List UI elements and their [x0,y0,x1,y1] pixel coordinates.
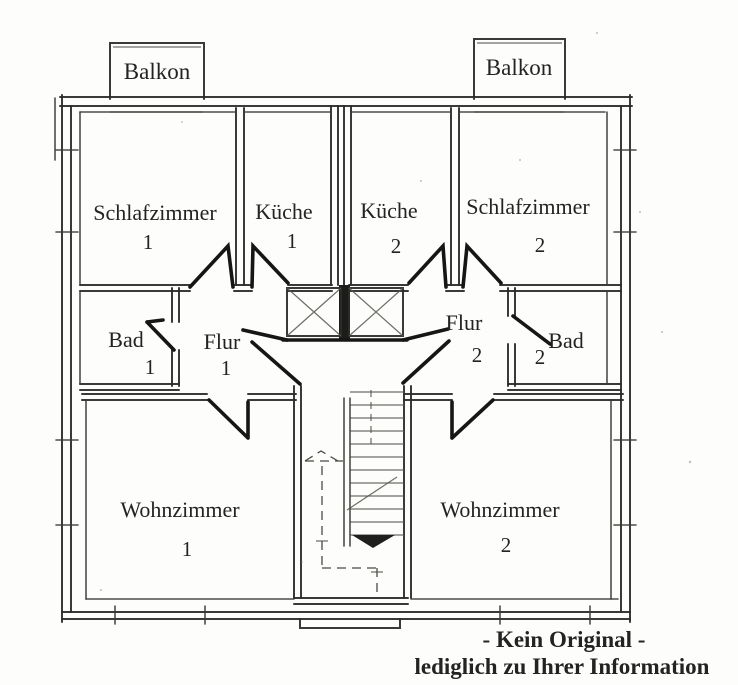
labels: Balkon Balkon Schlafzimmer 1 Küche 1 Küc… [93,55,709,679]
disclaimer-line-1: - Kein Original - [483,627,646,652]
door-bad-1 [147,320,174,350]
stair-banister [344,398,350,546]
door-schlafzimmer-2 [463,246,501,287]
door-kueche-2 [409,246,446,287]
door-flur-1-swing [243,330,287,340]
room-label-wohnzimmer-2: Wohnzimmer [440,497,560,522]
room-number-kueche-2: 2 [391,234,402,258]
room-label-kueche-2: Küche [360,198,417,223]
room-label-bad-1: Bad [108,327,143,352]
room-number-schlafzimmer-1: 1 [143,230,154,254]
room-number-wohnzimmer-2: 2 [501,533,512,557]
door-wohnzimmer-1 [209,400,248,438]
door-entry-apartment-2 [403,341,449,383]
room-label-schlafzimmer-1: Schlafzimmer [93,200,217,225]
door-kueche-1 [252,246,288,287]
scanned-floorplan-page: Balkon Balkon Schlafzimmer 1 Küche 1 Küc… [0,0,738,685]
door-schlafzimmer-1 [190,246,233,287]
room-number-bad-2: 2 [535,345,546,369]
room-number-flur-2: 2 [472,343,483,367]
stair-walkline [347,477,397,510]
room-label-wohnzimmer-1: Wohnzimmer [120,497,240,522]
floorplan-canvas: Balkon Balkon Schlafzimmer 1 Küche 1 Küc… [0,0,738,685]
shaft-boxes [283,285,407,340]
room-number-kueche-1: 1 [287,229,298,253]
disclaimer-line-2: lediglich zu Ihrer Information [415,654,710,679]
room-label-flur-2: Flur [446,310,483,335]
room-label-kueche-1: Küche [255,199,312,224]
room-number-schlafzimmer-2: 2 [535,233,546,257]
door-entry-apartment-1 [252,342,300,384]
balcony-label-1: Balkon [124,59,191,84]
staircase [305,390,404,592]
stair-direction-arrow [352,535,395,548]
room-label-schlafzimmer-2: Schlafzimmer [466,194,590,219]
door-flur-2-swing [403,329,448,340]
door-bad-2 [513,316,550,344]
door-wohnzimmer-2 [452,400,493,438]
room-number-wohnzimmer-1: 1 [182,537,193,561]
room-number-bad-1: 1 [145,355,156,379]
room-label-flur-1: Flur [204,329,241,354]
room-label-bad-2: Bad [548,328,583,353]
room-number-flur-1: 1 [221,356,232,380]
balcony-label-2: Balkon [486,55,553,80]
